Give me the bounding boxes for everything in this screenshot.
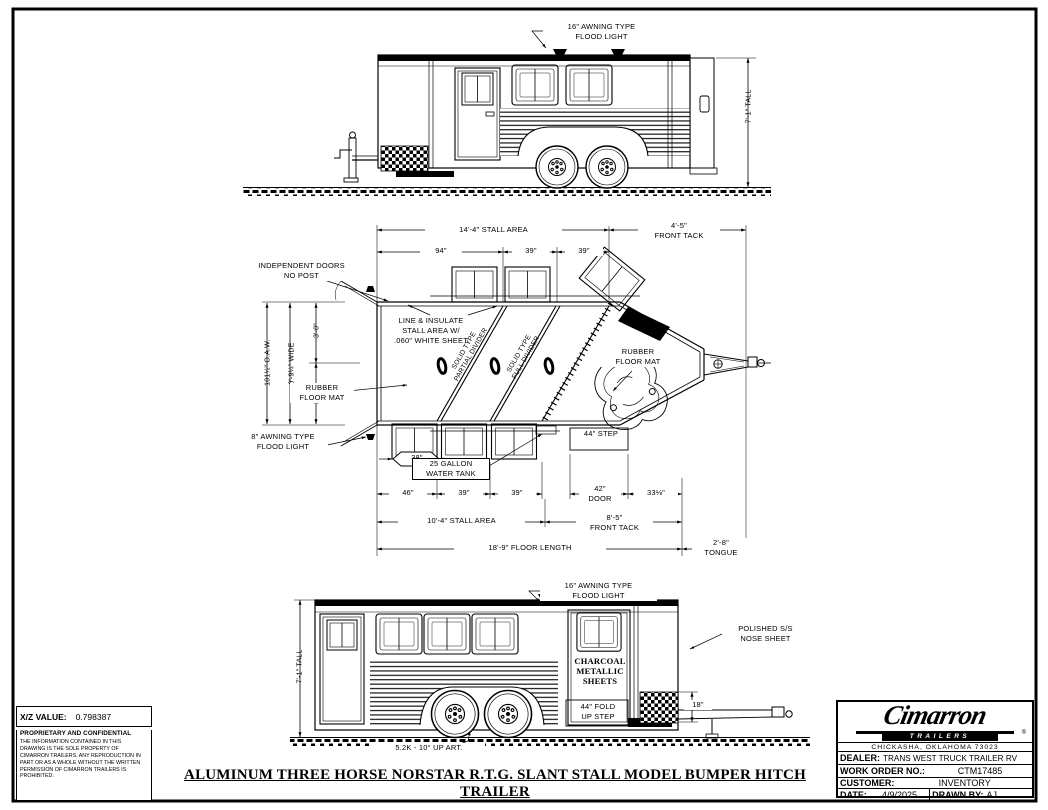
dim-3-0: 3'-0" <box>312 305 321 357</box>
title-block: Cimarron TRAILERS ® CHICKASHA, OKLAHOMA … <box>836 700 1034 798</box>
independent-doors-callout: INDEPENDENT DOORS NO POST <box>243 261 360 281</box>
drawn-by-value: AJ <box>987 790 998 800</box>
dim-front-tack-bottom: 8'-5" FRONT TACK <box>576 513 653 533</box>
drawn-by-cell: DRAWN BY: AJ <box>929 789 1032 800</box>
dim-height-top-view: 7'-1" TALL <box>744 71 753 143</box>
dim-stall-area-top: 14'-4" STALL AREA <box>425 225 562 235</box>
dim-39-b: 39" <box>565 246 603 256</box>
date-cell: DATE: 4/9/2025 <box>838 789 929 800</box>
flood-light-callout-bottom: 16" AWNING TYPE FLOOD LIGHT <box>540 581 657 601</box>
proprietary-notice: PROPRIETARY AND CONFIDENTIAL THE INFORMA… <box>16 730 152 801</box>
proprietary-body: THE INFORMATION CONTAINED IN THIS DRAWIN… <box>20 739 148 780</box>
rubber-mat-left-callout: RUBBER FLOOR MAT <box>290 383 354 403</box>
customer-label: CUSTOMER: <box>838 778 894 788</box>
work-order-label: WORK ORDER NO.: <box>838 766 925 776</box>
dim-tongue: 2'-8" TONGUE <box>692 538 750 558</box>
side-view-a-art <box>243 31 771 196</box>
xz-label: X/Z VALUE: <box>17 712 67 722</box>
dim-18: 18" <box>684 700 712 710</box>
work-order-value: CTM17485 <box>928 766 1032 776</box>
line-insulate-callout: LINE & INSULATE STALL AREA W/ .060" WHIT… <box>384 316 478 345</box>
side-view-b-art <box>290 591 810 747</box>
address-row: CHICKASHA, OKLAHOMA 73023 <box>838 742 1032 751</box>
work-order-row: WORK ORDER NO.: CTM17485 <box>838 764 1032 777</box>
logo-trailers-bar: TRAILERS <box>882 732 998 741</box>
dim-39-c: 39" <box>445 488 483 498</box>
xz-value-row: X/Z VALUE: 0.798387 <box>16 706 152 727</box>
dim-floor-length: 18'-9" FLOOR LENGTH <box>454 543 606 553</box>
customer-row: CUSTOMER: INVENTORY <box>838 777 1032 788</box>
flood-light-callout-top: 16" AWNING TYPE FLOOD LIGHT <box>543 22 660 42</box>
dim-height-bottom-view: 7'-1" TALL <box>295 631 304 703</box>
water-tank-callout: 25 GALLON WATER TANK <box>412 458 490 480</box>
fold-step-label: 44" FOLD UP STEP <box>569 702 627 722</box>
company-address: CHICKASHA, OKLAHOMA 73023 <box>871 744 998 751</box>
dealer-label: DEALER: <box>838 753 880 763</box>
date-label: DATE: <box>838 790 867 800</box>
rubber-mat-right-callout: RUBBER FLOOR MAT <box>601 347 675 367</box>
drawing-title: ALUMINUM THREE HORSE NORSTAR R.T.G. SLAN… <box>150 767 840 801</box>
flood-light-8-callout: 8" AWNING TYPE FLOOD LIGHT <box>238 432 328 452</box>
dim-46: 46" <box>389 488 427 498</box>
dim-oaw: 101½" O.A.W. <box>263 322 272 404</box>
dim-39-d: 39" <box>498 488 536 498</box>
date-value: 4/9/2025 <box>870 790 929 800</box>
date-row: DATE: 4/9/2025 DRAWN BY: AJ <box>838 788 1032 800</box>
polished-nose-callout: POLISHED S/S NOSE SHEET <box>722 624 809 644</box>
dim-stall-area-bottom: 10'-4" STALL AREA <box>398 516 525 526</box>
dealer-row: DEALER: TRANS WEST TRUCK TRAILER RV <box>838 751 1032 764</box>
logo-wordmark: Cimarron <box>881 700 989 731</box>
info-panel: X/Z VALUE: 0.798387 PROPRIETARY AND CONF… <box>16 706 152 801</box>
xz-value: 0.798387 <box>76 712 111 722</box>
drawing-sheet: 16" AWNING TYPE FLOOD LIGHT 7'-1" TALL I… <box>0 0 1048 810</box>
charcoal-sheets-label: CHARCOAL METALLIC SHEETS <box>570 657 630 686</box>
customer-value: INVENTORY <box>897 778 1032 788</box>
axle-callout: 5.2K - 10° UP ART. <box>373 743 485 753</box>
dim-door-42: 42" DOOR <box>579 484 621 504</box>
dealer-value: TRANS WEST TRUCK TRAILER RV <box>883 754 1017 763</box>
dim-front-tack-top: 4'-5" FRONT TACK <box>638 221 720 241</box>
dim-33: 33⅛" <box>634 488 678 498</box>
drawn-by-label: DRAWN BY: <box>930 790 983 800</box>
registered-mark: ® <box>1022 730 1026 736</box>
dim-39-a: 39" <box>512 246 550 256</box>
cimarron-logo: Cimarron TRAILERS ® <box>838 702 1032 742</box>
step-44-label: 44" STEP <box>577 429 625 439</box>
trailer-line-art <box>0 0 1048 810</box>
dim-94: 94" <box>420 246 462 256</box>
proprietary-title: PROPRIETARY AND CONFIDENTIAL <box>20 730 149 737</box>
